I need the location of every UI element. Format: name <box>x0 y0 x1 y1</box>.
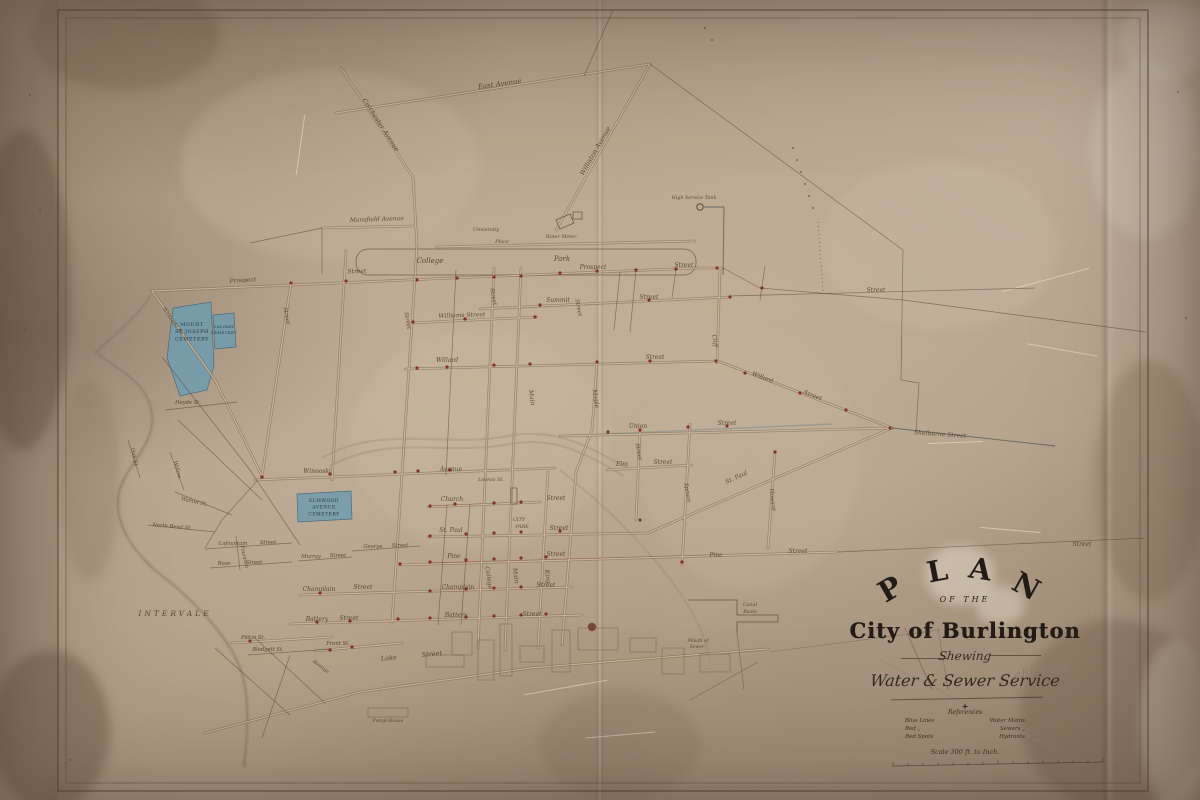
street-label: Street <box>347 268 367 276</box>
flourish-line <box>989 655 1041 656</box>
street-label: Park <box>553 255 570 263</box>
street-label: Street <box>574 299 583 318</box>
street-label: Water Meter <box>546 234 577 240</box>
street-label: Street <box>547 551 566 558</box>
street-label: INTERVALE <box>137 609 211 618</box>
street-label: Rose <box>217 561 231 567</box>
street-label: St. Paul <box>439 527 463 534</box>
street-label: Williston Avenue <box>578 125 613 177</box>
street-label: Pump House <box>372 718 404 724</box>
street-label: CITY <box>513 517 526 523</box>
cemetery-label: MOUNT <box>180 322 204 328</box>
street-label: Champlain <box>442 584 475 591</box>
street-label: Canal <box>743 602 757 608</box>
street-label: Street <box>403 312 412 331</box>
flourish-underline <box>891 697 1043 701</box>
street-label: Street <box>646 354 665 361</box>
legend-value: Hydrants <box>999 734 1025 740</box>
street-label: Pine <box>446 553 461 560</box>
street-label: Main <box>511 567 520 584</box>
street-label: Willard <box>436 357 458 364</box>
street-label: Pine <box>708 552 723 559</box>
street-label: Battery <box>444 612 468 619</box>
street-label: Main <box>527 389 536 406</box>
legend-key: Red Spots <box>905 734 933 740</box>
street-label: Heyde St. <box>174 400 201 406</box>
map-sheet: East AvenueColchester AvenueWilliston Av… <box>0 0 1200 800</box>
title-shewing: Shewing <box>838 649 1091 663</box>
street-label: Street <box>867 287 886 294</box>
cemetery-label: ELMWOOD <box>309 498 339 504</box>
street-label: PARK <box>514 524 529 530</box>
street-label: Street <box>634 443 643 462</box>
street-label: Elm <box>615 461 628 468</box>
street-label: Maple <box>591 388 601 409</box>
legend-key: Blue Lines <box>905 718 934 724</box>
ink-blot <box>588 623 596 631</box>
cemetery-label: CEMETERY <box>175 336 209 342</box>
street-label: George <box>363 544 382 550</box>
street-label: High Service Tank <box>671 195 717 201</box>
street-label: Street <box>675 262 694 269</box>
cemetery-label: CEMETERY <box>308 511 340 517</box>
street-label: Winooski <box>303 468 331 475</box>
title-plan-letter: L <box>924 552 951 589</box>
street-label: Front St. <box>325 641 350 647</box>
street-label: Street <box>489 288 498 307</box>
legend-row: Red Spots Hydrants <box>905 734 1025 740</box>
cemetery-label: CALVARY <box>214 325 235 329</box>
street-label: Church <box>441 496 464 503</box>
street-label: Willow <box>172 460 183 479</box>
street-label: Lake <box>380 653 398 662</box>
street-label: Avenue <box>310 658 330 675</box>
street-label: Street <box>802 389 823 403</box>
cemetery-label: AVENUE <box>311 505 336 511</box>
street-label: St. Paul <box>724 469 748 485</box>
street-label: Street <box>282 307 291 326</box>
street-label: Street <box>640 294 659 301</box>
street-label: Howard <box>768 488 776 512</box>
street-label: Champlain <box>303 586 336 593</box>
title-city-name: City of Burlington <box>839 618 1091 643</box>
cemetery-label: ST JOSEPH <box>175 329 209 335</box>
street-label: Mouth of <box>687 638 710 644</box>
legend-key: Red „ <box>905 726 921 732</box>
street-label: Street <box>550 525 569 532</box>
street-label: Murray <box>300 554 321 560</box>
title-of-the: OF THE <box>839 595 1091 604</box>
street-label: Street <box>789 548 808 555</box>
street-label: North Bend St. <box>151 522 192 532</box>
legend-row: Blue Lines Water Mains <box>905 718 1025 724</box>
legend-heading: References <box>839 709 1091 716</box>
street-label: Street <box>547 495 566 502</box>
street-label: Battery <box>305 616 329 623</box>
street-label: Place <box>494 239 509 245</box>
high-service-tank-symbol <box>697 204 703 210</box>
title-plan-letter: A <box>966 550 994 587</box>
street-label: Street <box>1073 541 1092 548</box>
street-label: Willard <box>751 370 774 385</box>
street-label: Street <box>392 543 409 549</box>
street-label: Street <box>523 611 542 618</box>
street-label: Shelburne Street <box>914 429 967 440</box>
street-label: Street <box>354 584 373 591</box>
street-label: Fountain <box>238 544 249 569</box>
street-label: Walnut St. <box>180 496 208 508</box>
street-label: Street <box>260 540 277 546</box>
street-label: Basin <box>742 609 756 615</box>
legend-value: Sewers „ <box>1000 726 1025 732</box>
street-label: Blodgett St. <box>251 647 284 653</box>
scale-statement: Scale 300 ft. to Inch. <box>839 748 1091 756</box>
street-label: Spruce <box>682 483 691 504</box>
legend-rows: Blue Lines Water Mains Red „ Sewers „ Re… <box>905 718 1025 742</box>
street-label: Summit <box>546 297 570 304</box>
street-label: Sewer <box>690 644 705 650</box>
street-label: East Avenue <box>476 77 522 91</box>
street-label: College <box>483 566 493 590</box>
street-label: Union <box>629 423 647 430</box>
cemetery-label: CEMETERY <box>211 331 237 335</box>
street-label: College <box>417 257 444 265</box>
street-label: Prospect <box>579 264 607 271</box>
street-label: Street <box>330 553 347 559</box>
street-label: Mansfield Avenue <box>349 215 405 224</box>
street-label: Street <box>340 615 359 622</box>
street-label: University <box>473 227 499 233</box>
street-label: Loomis St. <box>477 477 504 483</box>
street-label: Street <box>421 649 442 659</box>
street-label: Pitkin St. <box>240 635 266 641</box>
legend-value: Water Mains <box>990 718 1025 724</box>
street-label: Prospect <box>228 276 257 284</box>
street-label: Avenue <box>439 466 463 473</box>
street-label: Street <box>654 459 673 466</box>
legend-row: Red „ Sewers „ <box>905 726 1025 732</box>
street-label: Street <box>718 420 737 427</box>
